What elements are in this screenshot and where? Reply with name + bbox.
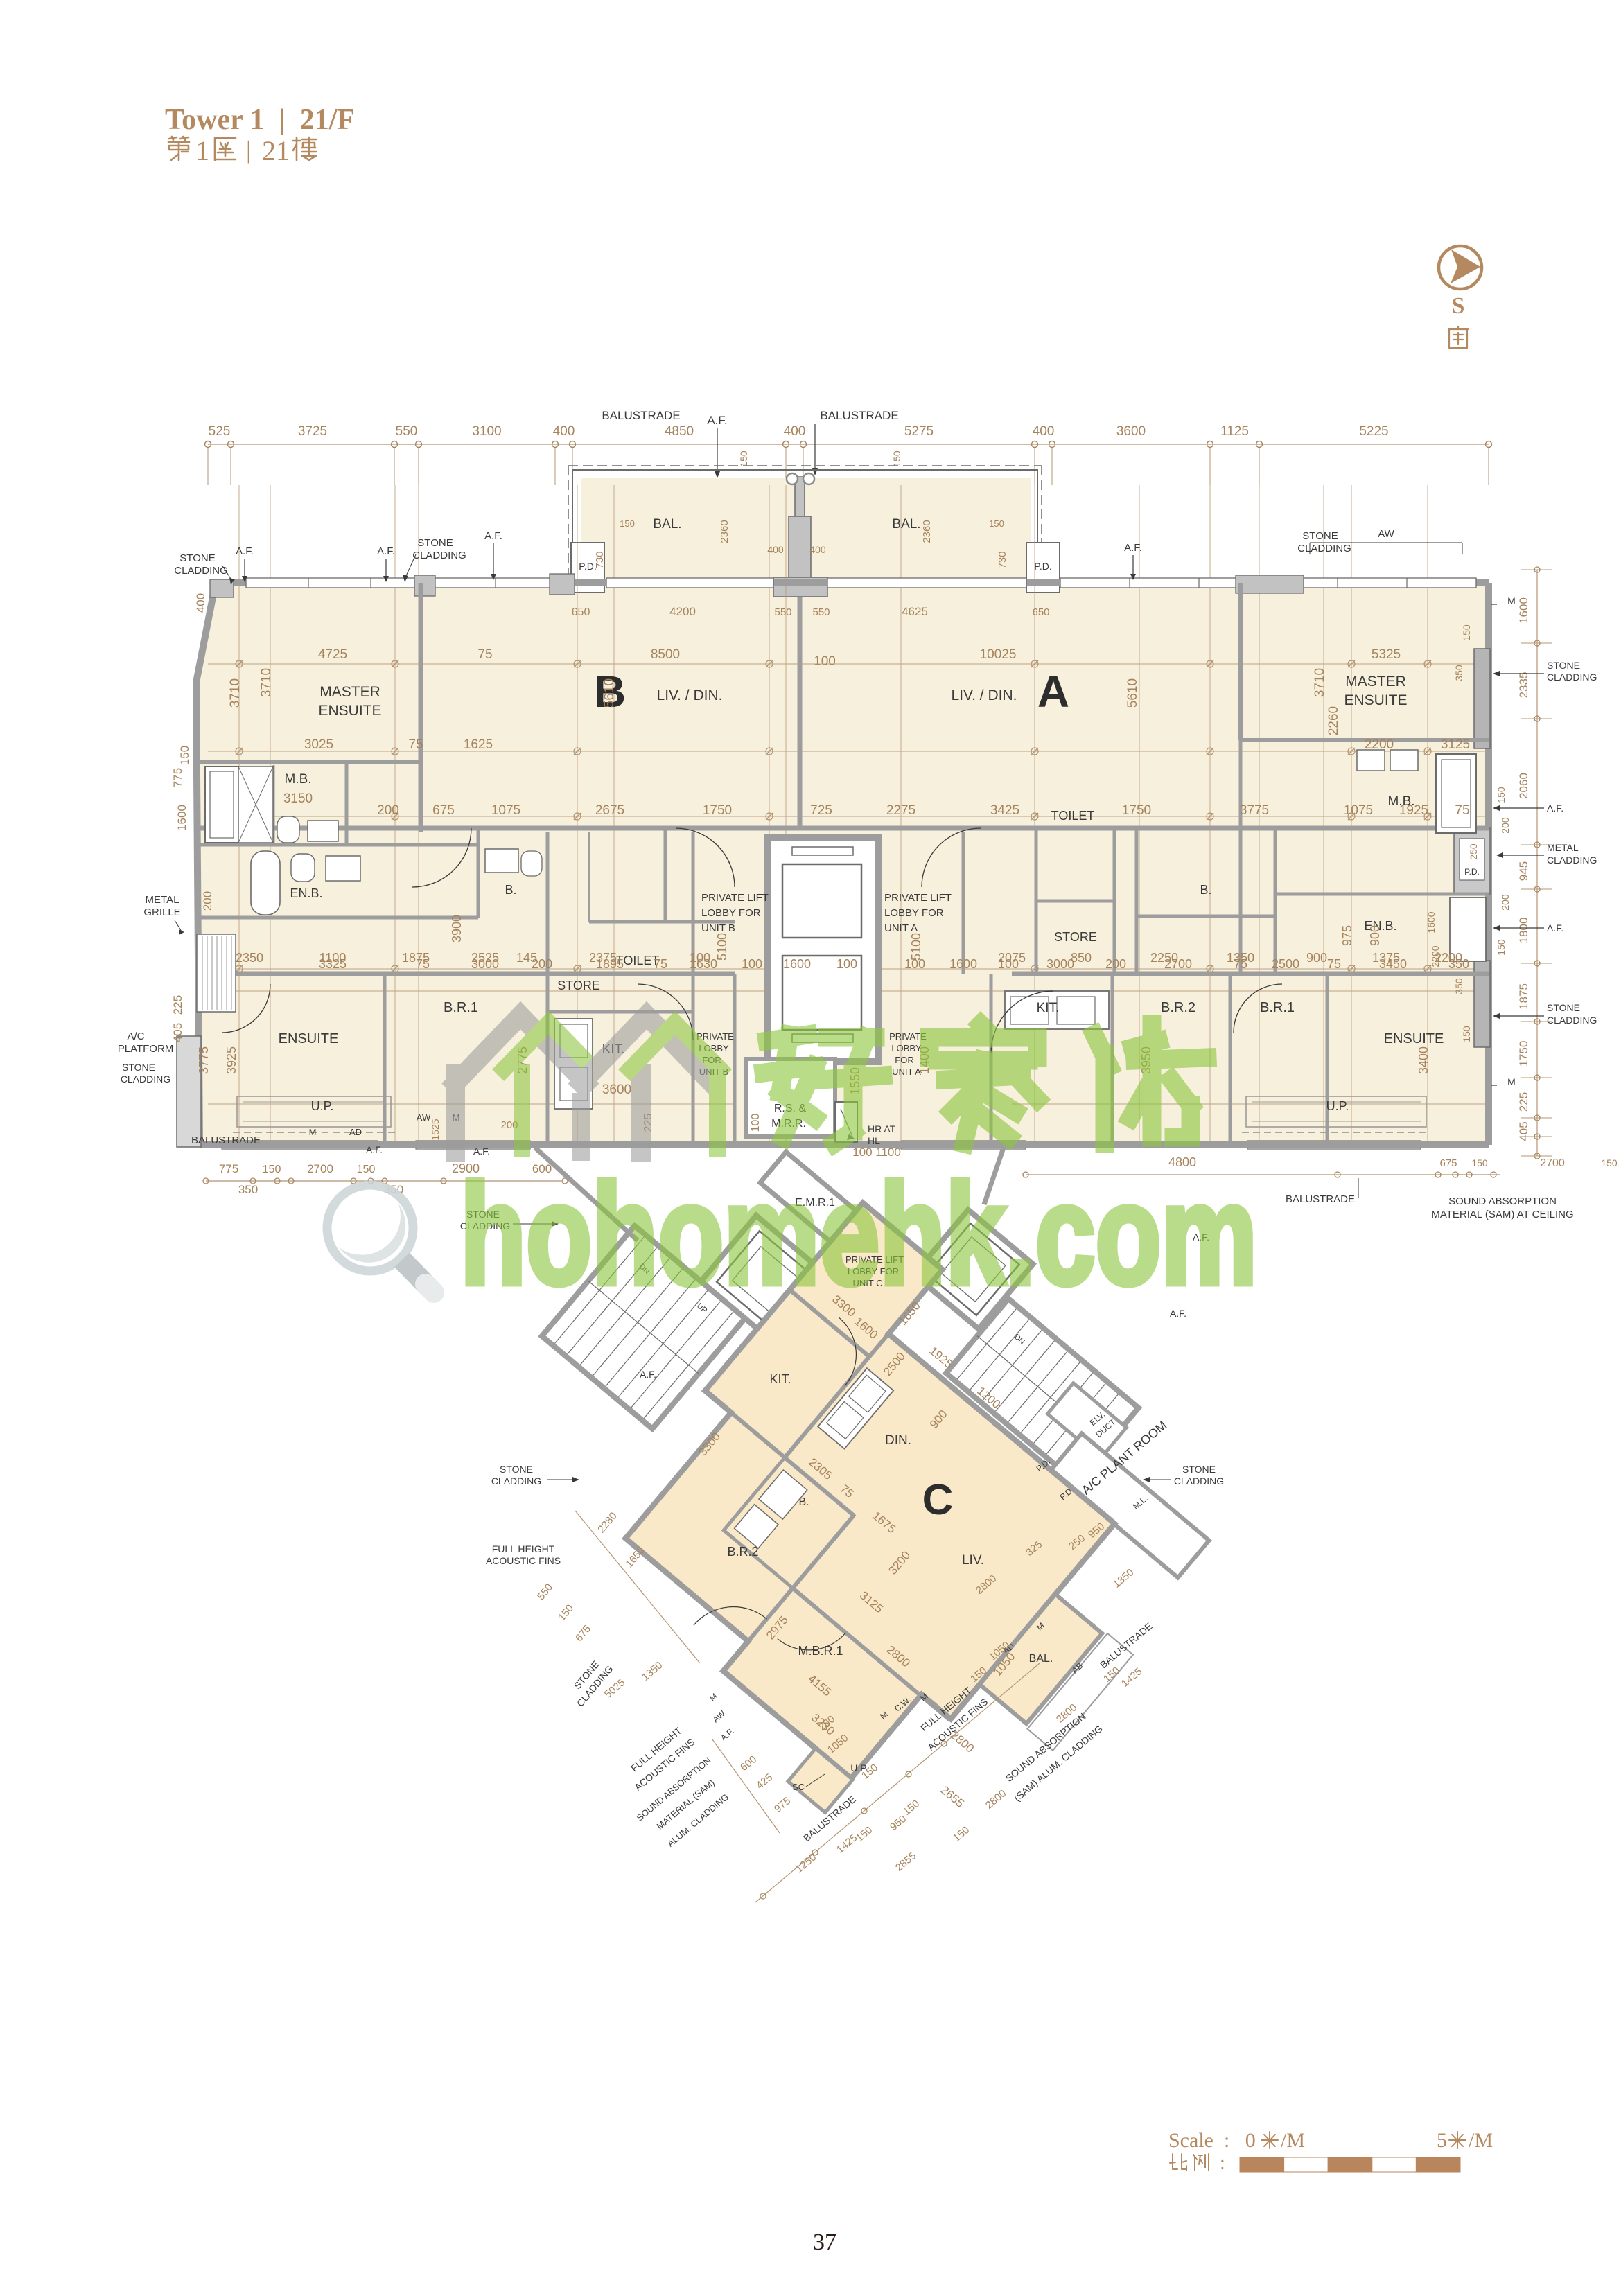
svg-text:AW: AW (417, 1112, 431, 1123)
svg-text:350: 350 (1448, 957, 1469, 971)
svg-text:150: 150 (1601, 1157, 1618, 1168)
svg-text:A: A (1037, 667, 1069, 717)
svg-text:5225: 5225 (1359, 424, 1388, 439)
svg-text:Tower 1 | 21/F: Tower 1 | 21/F (165, 104, 355, 136)
svg-text:GRILLE: GRILLE (143, 906, 180, 918)
svg-text:STONE: STONE (1182, 1464, 1216, 1475)
svg-text:5610: 5610 (602, 678, 617, 708)
svg-text:350: 350 (238, 1183, 258, 1196)
svg-text:550: 550 (812, 606, 830, 618)
svg-text:150: 150 (1461, 624, 1472, 641)
svg-text:200: 200 (1105, 957, 1126, 971)
svg-text:1750: 1750 (1517, 1041, 1530, 1067)
svg-text:945: 945 (1517, 861, 1530, 881)
svg-text:B.R.1: B.R.1 (444, 1000, 478, 1015)
svg-text:3000: 3000 (471, 957, 499, 971)
svg-text:BAL.: BAL. (892, 517, 920, 532)
svg-text:2700: 2700 (1540, 1157, 1565, 1169)
svg-text:B.R.1: B.R.1 (1260, 1000, 1295, 1015)
svg-text:BALUSTRADE: BALUSTRADE (191, 1134, 261, 1146)
svg-text:1: 1 (195, 135, 209, 166)
svg-text:1125: 1125 (1220, 424, 1249, 439)
svg-text:150: 150 (263, 1164, 281, 1175)
svg-text:A.F.: A.F. (1124, 542, 1142, 554)
svg-text:3325: 3325 (319, 957, 347, 971)
svg-text:S: S (1452, 293, 1465, 319)
svg-text:675: 675 (432, 803, 455, 818)
svg-text:B.R.2: B.R.2 (727, 1545, 758, 1559)
svg-text:KIT.: KIT. (1037, 1001, 1060, 1015)
svg-text:UNIT A: UNIT A (884, 922, 918, 934)
svg-text:hohomehk.com: hohomehk.com (460, 1155, 1257, 1314)
svg-text:1600: 1600 (175, 805, 189, 831)
svg-text:150: 150 (989, 518, 1004, 529)
svg-text:1600: 1600 (783, 957, 811, 971)
svg-text:CLADDING: CLADDING (174, 565, 228, 577)
svg-text:150: 150 (178, 746, 191, 765)
svg-text:650: 650 (1032, 606, 1049, 618)
svg-text:900: 900 (1306, 951, 1327, 965)
svg-text:150: 150 (1471, 1157, 1488, 1168)
svg-text:LIV. / DIN.: LIV. / DIN. (952, 687, 1017, 703)
svg-text:2700: 2700 (1164, 957, 1192, 971)
svg-text:KIT.: KIT. (769, 1372, 791, 1386)
svg-text:PRIVATE LIFT: PRIVATE LIFT (884, 892, 952, 904)
svg-text:ENSUITE: ENSUITE (318, 703, 381, 719)
svg-text:ENSUITE: ENSUITE (1344, 692, 1407, 708)
svg-text:A.F.: A.F. (377, 545, 395, 557)
svg-text:150: 150 (1496, 939, 1507, 956)
svg-text:1630: 1630 (690, 957, 717, 971)
svg-text:BALUSTRADE: BALUSTRADE (602, 409, 680, 422)
svg-text:250: 250 (1468, 843, 1479, 860)
svg-text:2260: 2260 (1326, 706, 1341, 735)
svg-text:225: 225 (1517, 1092, 1530, 1112)
svg-text:3925: 3925 (225, 1046, 238, 1074)
svg-text:FULL HEIGHT: FULL HEIGHT (492, 1543, 555, 1554)
svg-text:AD: AD (349, 1127, 362, 1137)
svg-text:3400: 3400 (1417, 1046, 1430, 1074)
svg-text:B.R.2: B.R.2 (1161, 1000, 1195, 1015)
svg-text:525: 525 (209, 424, 231, 439)
svg-text:HL: HL (868, 1135, 880, 1146)
svg-text:550: 550 (774, 606, 791, 618)
svg-text:STORE: STORE (557, 979, 600, 992)
svg-text:LOBBY FOR: LOBBY FOR (701, 907, 761, 919)
svg-text:3025: 3025 (304, 737, 333, 752)
svg-text:A.F.: A.F. (1547, 803, 1563, 814)
svg-text:405: 405 (171, 1023, 184, 1042)
svg-text:STONE: STONE (500, 1464, 533, 1475)
svg-text:BAL.: BAL. (653, 517, 681, 532)
svg-text:P.D.: P.D. (1464, 867, 1480, 877)
svg-text:ENSUITE: ENSUITE (279, 1031, 339, 1046)
svg-text::: : (1215, 2153, 1225, 2174)
svg-text:3775: 3775 (197, 1046, 211, 1074)
svg-text:400: 400 (767, 544, 784, 555)
svg-text:U.P.: U.P. (1326, 1099, 1349, 1113)
svg-text:A.F.: A.F. (707, 414, 727, 427)
svg-text:B.: B. (1200, 883, 1211, 897)
svg-text:3600: 3600 (602, 1083, 631, 1097)
svg-text:3425: 3425 (990, 803, 1019, 818)
svg-text:A.F.: A.F. (484, 530, 502, 542)
svg-text:2700: 2700 (307, 1162, 333, 1175)
svg-text:75: 75 (654, 957, 667, 971)
svg-text:405: 405 (1517, 1121, 1530, 1141)
svg-text:150: 150 (891, 450, 902, 467)
svg-text:STONE: STONE (1302, 530, 1338, 542)
svg-text:150: 150 (1496, 787, 1507, 803)
svg-text:225: 225 (171, 995, 184, 1015)
svg-text:SC: SC (792, 1782, 805, 1792)
svg-text:2360: 2360 (921, 520, 933, 543)
svg-text:CLADDING: CLADDING (1547, 672, 1597, 683)
svg-text:4850: 4850 (665, 424, 694, 439)
svg-text:730: 730 (997, 551, 1008, 568)
svg-text:U.P.: U.P. (311, 1099, 334, 1113)
svg-text:400: 400 (809, 544, 826, 555)
svg-text:A/C: A/C (127, 1031, 144, 1042)
svg-text:100: 100 (814, 654, 836, 669)
svg-text:DIN.: DIN. (885, 1433, 911, 1448)
svg-text:1600: 1600 (1426, 911, 1437, 933)
svg-text:UNIT B: UNIT B (701, 922, 735, 934)
svg-text:1600: 1600 (949, 957, 977, 971)
svg-text:ENSUITE: ENSUITE (1384, 1031, 1444, 1046)
svg-text:3450: 3450 (1379, 957, 1407, 971)
svg-text:675: 675 (1439, 1157, 1457, 1169)
svg-text:3000: 3000 (1046, 957, 1074, 971)
svg-text:1075: 1075 (1344, 803, 1373, 818)
svg-text:PLATFORM: PLATFORM (118, 1043, 174, 1055)
svg-text:STORE: STORE (1054, 930, 1097, 944)
svg-text:LOBBY FOR: LOBBY FOR (884, 907, 944, 919)
svg-text:|: | (246, 136, 251, 164)
svg-text:5275: 5275 (904, 424, 934, 439)
svg-text:PRIVATE LIFT: PRIVATE LIFT (701, 892, 769, 904)
svg-text:1925: 1925 (1399, 803, 1428, 818)
svg-text:75: 75 (1327, 957, 1341, 971)
svg-text:B.: B. (505, 883, 516, 897)
svg-text:2060: 2060 (1517, 773, 1530, 799)
svg-text:UNIT A: UNIT A (892, 1067, 921, 1077)
svg-text:EN.B.: EN.B. (290, 886, 322, 900)
svg-text:400: 400 (194, 593, 207, 613)
svg-text:CLADDING: CLADDING (1174, 1475, 1224, 1487)
svg-text:3710: 3710 (259, 668, 274, 697)
svg-text:B.: B. (798, 1496, 809, 1508)
svg-text:3775: 3775 (1240, 803, 1269, 818)
svg-text:730: 730 (594, 551, 606, 568)
svg-text:M: M (309, 1127, 317, 1137)
svg-text:4625: 4625 (902, 605, 928, 618)
svg-text:5: 5 (1437, 2129, 1447, 2152)
svg-text:75: 75 (408, 737, 423, 752)
svg-text:LIV.: LIV. (962, 1553, 984, 1568)
svg-text:4200: 4200 (669, 605, 696, 618)
svg-text:LIV. / DIN.: LIV. / DIN. (657, 687, 723, 703)
svg-text:P.D.: P.D. (1034, 561, 1051, 572)
svg-text:650: 650 (572, 606, 590, 618)
svg-text:200: 200 (532, 957, 552, 971)
svg-text:37: 37 (813, 2229, 836, 2255)
svg-text:M: M (1507, 595, 1516, 606)
svg-text:1075: 1075 (491, 803, 520, 818)
svg-text:100: 100 (750, 1114, 762, 1132)
svg-text:150: 150 (1461, 1026, 1472, 1042)
svg-text:FOR: FOR (895, 1055, 913, 1065)
svg-text:MASTER: MASTER (319, 684, 380, 700)
svg-text:200: 200 (1500, 817, 1511, 834)
svg-text:TOILET: TOILET (1051, 809, 1095, 823)
svg-text:2275: 2275 (886, 803, 915, 818)
svg-text:150: 150 (357, 1164, 376, 1175)
svg-text:2500: 2500 (1272, 957, 1299, 971)
svg-text:350: 350 (1453, 978, 1464, 994)
svg-text:2360: 2360 (719, 520, 730, 543)
svg-text:C: C (922, 1476, 954, 1524)
svg-text:CLADDING: CLADDING (1297, 543, 1351, 554)
svg-text:M.B.R.1: M.B.R.1 (798, 1644, 843, 1658)
svg-text:200: 200 (201, 891, 214, 911)
svg-text:21: 21 (262, 135, 290, 166)
svg-text:M: M (1507, 1076, 1516, 1087)
svg-text:400: 400 (784, 424, 806, 439)
svg-text:MASTER: MASTER (1345, 674, 1406, 690)
svg-text:2200: 2200 (1430, 945, 1441, 967)
svg-text:75: 75 (1455, 803, 1469, 818)
svg-text:3710: 3710 (1313, 668, 1327, 697)
svg-text:10025: 10025 (980, 647, 1017, 662)
svg-text:METAL: METAL (146, 894, 179, 906)
svg-text:1800: 1800 (1517, 918, 1530, 944)
svg-text:900: 900 (1368, 925, 1382, 946)
svg-text:8500: 8500 (651, 647, 680, 662)
svg-text:ACOUSTIC FINS: ACOUSTIC FINS (486, 1555, 561, 1566)
svg-text:5100: 5100 (909, 933, 923, 961)
svg-text:3900: 3900 (450, 915, 464, 943)
svg-text:4725: 4725 (318, 647, 347, 662)
svg-text:STONE: STONE (179, 552, 215, 564)
svg-text:AW: AW (1378, 528, 1394, 540)
svg-text:5610: 5610 (1125, 678, 1140, 708)
svg-text:2335: 2335 (1517, 672, 1530, 699)
svg-text:2350: 2350 (236, 951, 263, 965)
svg-text:75: 75 (416, 957, 430, 971)
svg-text:CLADDING: CLADDING (412, 550, 466, 561)
svg-text:A.F.: A.F. (366, 1144, 383, 1155)
svg-text:400: 400 (1033, 424, 1055, 439)
svg-text:200: 200 (1500, 894, 1511, 911)
svg-text:/M: /M (1281, 2129, 1305, 2152)
svg-text:CLADDING: CLADDING (491, 1475, 541, 1487)
svg-text:100: 100 (836, 957, 857, 971)
svg-text:Scale : 0: Scale : 0 (1168, 2129, 1256, 2152)
svg-text:200: 200 (377, 803, 399, 818)
svg-text:550: 550 (396, 424, 418, 439)
svg-text:150: 150 (738, 450, 749, 467)
svg-text:3725: 3725 (298, 424, 327, 439)
svg-text:STONE: STONE (1547, 1002, 1580, 1013)
svg-text:1625: 1625 (464, 737, 493, 752)
svg-text:1525: 1525 (430, 1119, 441, 1140)
svg-text:A.F.: A.F. (640, 1369, 656, 1380)
svg-text:775: 775 (171, 768, 184, 787)
svg-text:BALUSTRADE: BALUSTRADE (1286, 1193, 1355, 1205)
svg-text:MATERIAL (SAM) AT CEILING: MATERIAL (SAM) AT CEILING (1431, 1209, 1573, 1220)
svg-text:1750: 1750 (703, 803, 732, 818)
svg-text:150: 150 (620, 518, 635, 529)
svg-text:STONE: STONE (122, 1062, 155, 1073)
svg-text:/M: /M (1469, 2129, 1493, 2152)
svg-text:2200: 2200 (1365, 737, 1394, 752)
svg-text:350: 350 (1453, 665, 1464, 681)
svg-text:METAL: METAL (1547, 842, 1579, 853)
svg-text:3100: 3100 (472, 424, 501, 439)
svg-text:CLADDING: CLADDING (121, 1073, 170, 1085)
svg-text:M.B.: M.B. (284, 772, 311, 787)
svg-text:BALUSTRADE: BALUSTRADE (820, 409, 898, 422)
svg-text:CLADDING: CLADDING (1547, 1015, 1597, 1026)
svg-text:2675: 2675 (595, 803, 624, 818)
svg-text:A.F.: A.F. (236, 545, 254, 557)
svg-text:5100: 5100 (715, 933, 729, 961)
svg-text:3710: 3710 (228, 678, 243, 708)
svg-text:STONE: STONE (1547, 660, 1580, 671)
svg-text:A.F.: A.F. (1547, 922, 1563, 934)
svg-text:775: 775 (219, 1162, 238, 1175)
svg-text:HR AT: HR AT (868, 1123, 896, 1134)
svg-text:75: 75 (477, 647, 492, 662)
svg-text:100: 100 (998, 957, 1019, 971)
svg-text:75: 75 (1234, 957, 1247, 971)
svg-text:BAL.: BAL. (1029, 1653, 1053, 1665)
svg-text:3150: 3150 (283, 791, 313, 806)
svg-text:725: 725 (810, 803, 832, 818)
svg-text:975: 975 (1340, 925, 1354, 946)
svg-text:1895: 1895 (596, 957, 624, 971)
svg-text:1750: 1750 (1122, 803, 1151, 818)
svg-text:400: 400 (553, 424, 575, 439)
svg-text:SOUND ABSORPTION: SOUND ABSORPTION (1448, 1195, 1557, 1207)
svg-text:3125: 3125 (1441, 737, 1470, 752)
svg-text:1600: 1600 (1517, 597, 1530, 624)
svg-text:100: 100 (742, 957, 762, 971)
svg-text:STONE: STONE (417, 537, 453, 549)
svg-text:1875: 1875 (1517, 983, 1530, 1010)
svg-text:3600: 3600 (1116, 424, 1146, 439)
svg-text:CLADDING: CLADDING (1547, 855, 1597, 866)
svg-text:5325: 5325 (1372, 647, 1401, 662)
